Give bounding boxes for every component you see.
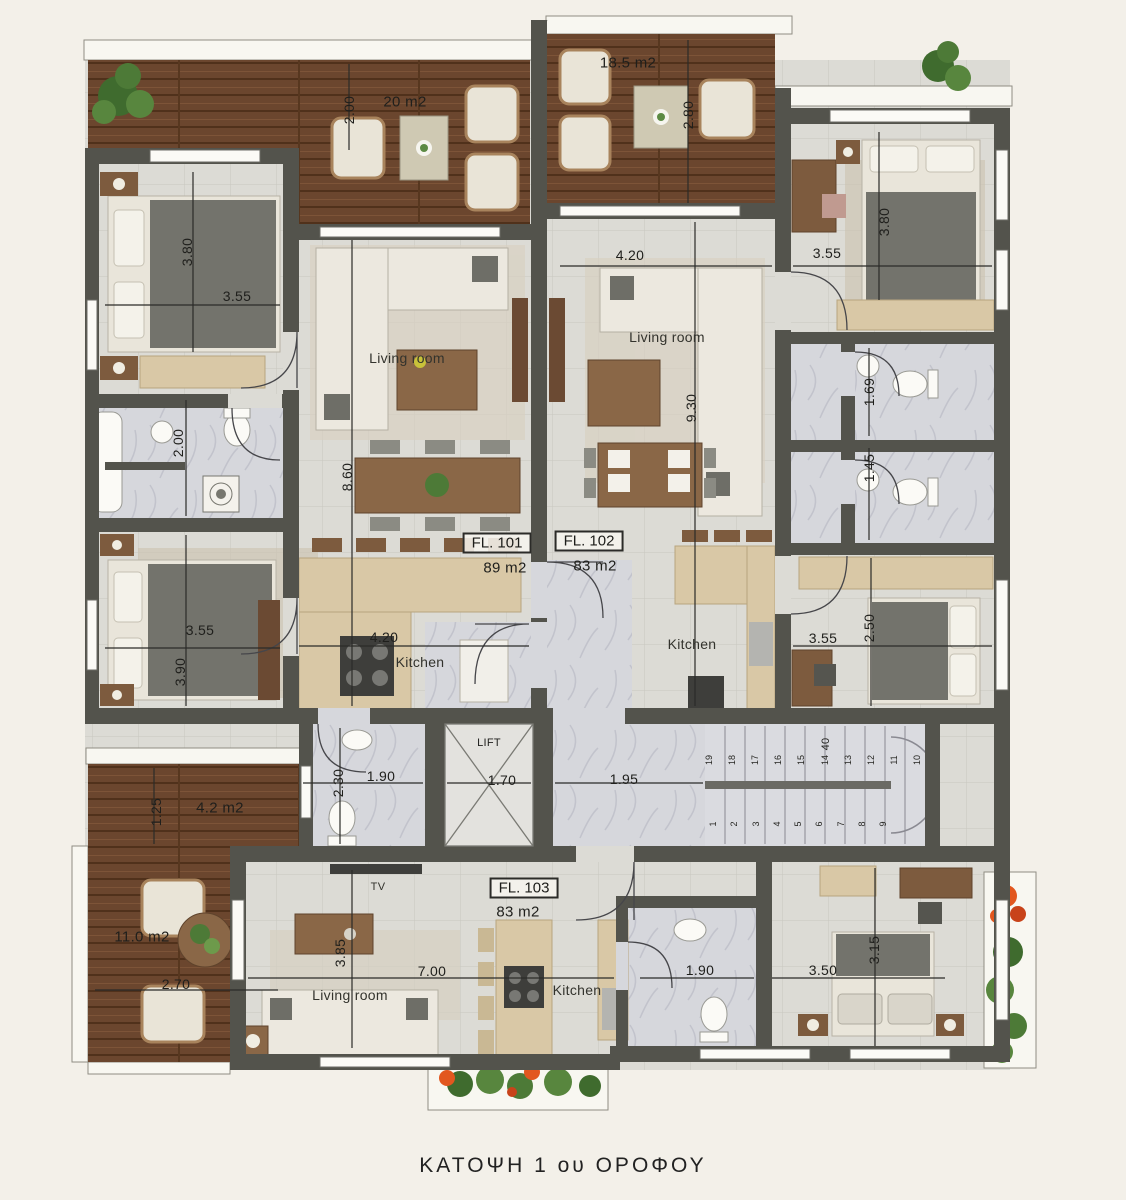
dim-bath-right2-depth: 1.45: [861, 454, 877, 482]
room-label-lift: LIFT: [477, 737, 501, 749]
dim-kitchen101-width: 4.20: [370, 629, 398, 645]
room-label-living-fl101: Living room: [369, 350, 445, 366]
dim-living103-width: 7.00: [418, 963, 446, 979]
dim-bedroom1-width: 3.55: [223, 288, 251, 304]
dim-terrace-top-right-depth: 2.80: [680, 101, 696, 129]
dim-bedroom-midright-width: 3.55: [809, 630, 837, 646]
room-label-kitchen-fl101: Kitchen: [396, 654, 445, 670]
stairs-lower-step-numbers: 123456789: [708, 802, 888, 846]
stair-step-number: 11: [889, 755, 899, 765]
dim-living101-depth: 8.60: [339, 463, 355, 491]
room-label-tv: TV: [371, 881, 386, 893]
apartment-area-fl102: 83 m2: [573, 558, 616, 575]
room-label-kitchen-fl103: Kitchen: [553, 982, 602, 998]
terrace-mid-left-area-label: 4.2 m2: [196, 800, 244, 817]
dim-bath-right1-depth: 1.69: [861, 378, 877, 406]
stair-step-number: 15: [796, 755, 806, 765]
stair-step-number: 19: [704, 755, 714, 765]
dim-bedroom2-depth: 3.90: [172, 658, 188, 686]
room-label-kitchen-fl102: Kitchen: [668, 636, 717, 652]
stair-step-number: 8: [857, 819, 867, 829]
terrace-top-right-area-label: 18.5 m2: [600, 55, 656, 72]
stair-step-number: 7: [836, 819, 846, 829]
dim-bath-center-depth: 2.30: [330, 769, 346, 797]
stair-step-number: 12: [866, 755, 876, 765]
terrace-top-left-area-label: 20 m2: [383, 94, 426, 111]
dim-bath103-width: 1.90: [686, 962, 714, 978]
dim-bedroom-bottomright-width: 3.50: [809, 962, 837, 978]
dim-terrace-mid-left-depth: 1.25: [148, 798, 164, 826]
stair-step-number: 17: [750, 755, 760, 765]
apartment-label-fl102: FL. 102: [555, 531, 624, 552]
dim-bedroom-bottomright-depth: 3.15: [866, 936, 882, 964]
dim-living102-depth: 9.30: [683, 394, 699, 422]
apartment-area-fl101: 89 m2: [483, 560, 526, 577]
stair-step-number: 3: [751, 819, 761, 829]
dim-bath-center-width: 1.90: [367, 768, 395, 784]
stair-step-number: 13: [843, 755, 853, 765]
dim-living102-width: 4.20: [616, 247, 644, 263]
stair-step-number: 2: [729, 819, 739, 829]
stair-step-number: 16: [773, 755, 783, 765]
dim-bedroom-topright-width: 3.55: [813, 245, 841, 261]
stair-step-number: 10: [912, 755, 922, 765]
dim-terrace-bottom-left-width: 2.70: [162, 976, 190, 992]
floor-plan-drawing: [0, 0, 1126, 1200]
apartment-area-fl103: 83 m2: [496, 904, 539, 921]
stairs-upper-step-numbers: 19181716151413121110: [704, 738, 922, 782]
dim-corridor-width: 1.95: [610, 771, 638, 787]
dim-bedroom2-width: 3.55: [186, 622, 214, 638]
stair-step-number: 9: [878, 819, 888, 829]
dim-lift-width: 1.70: [488, 772, 516, 788]
stair-step-number: 5: [793, 819, 803, 829]
dim-bedroom-midright-depth: 2.50: [861, 614, 877, 642]
dim-living103-depth: 3.85: [332, 939, 348, 967]
apartment-label-fl101: FL. 101: [463, 533, 532, 554]
plan-title: ΚΑΤΟΨΗ 1 ου ΟΡΟΦΟΥ: [419, 1154, 706, 1178]
stair-step-number: 14: [820, 755, 830, 765]
dim-terrace-top-left-depth: 2.00: [341, 96, 357, 124]
floor-plan-page: { "title": "ΚΑΤΟΨΗ 1 ου ΟΡΟΦΟΥ", "apartm…: [0, 0, 1126, 1200]
room-label-living-fl102: Living room: [629, 329, 705, 345]
stair-step-number: 4: [772, 819, 782, 829]
stair-step-number: 1: [708, 819, 718, 829]
stair-step-number: 6: [814, 819, 824, 829]
stair-step-number: 18: [727, 755, 737, 765]
dim-bedroom-topright-depth: 3.80: [876, 208, 892, 236]
room-label-living-fl103: Living room: [312, 987, 388, 1003]
terrace-bottom-left-area-label: 11.0 m2: [114, 929, 169, 946]
dim-bedroom1-depth: 3.80: [179, 238, 195, 266]
dim-bath-left-depth: 2.00: [170, 429, 186, 457]
apartment-label-fl103: FL. 103: [490, 878, 559, 899]
